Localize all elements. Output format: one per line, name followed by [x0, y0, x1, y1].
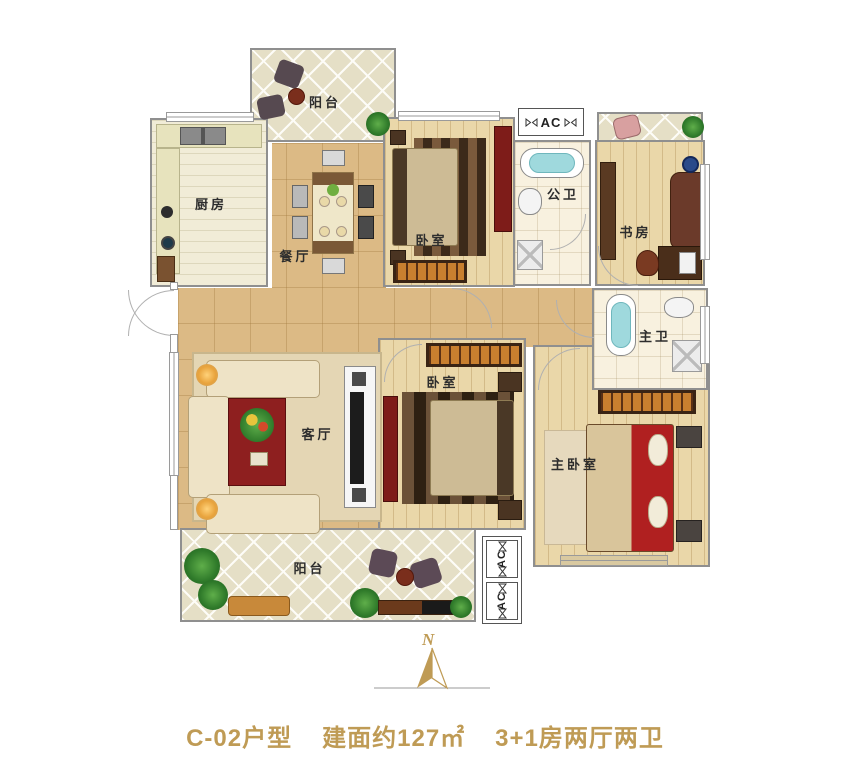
master-bed-pillow: [648, 434, 668, 466]
ac-label-bottom-2: AC: [496, 592, 508, 610]
bowtie-icon: [564, 118, 577, 127]
master-bath-bathtub: [606, 294, 636, 356]
bedroom-mid-nightstand: [498, 500, 522, 520]
room-label-bedroom-mid: 卧室: [415, 372, 470, 391]
balcony-bottom-chair: [368, 548, 399, 579]
room-label-bedroom-top: 卧室: [404, 230, 459, 249]
public-bath-shower: [517, 240, 543, 270]
living-tv: [350, 392, 364, 484]
balcony-bottom-planter: [378, 600, 458, 615]
study-bay-plant: [682, 116, 704, 138]
living-sofa-top: [206, 360, 320, 398]
floorplan-canvas: 阳台 厨房 餐厅 卧室 AC 公卫 书房: [0, 0, 850, 767]
master-bedroom-window: [560, 555, 668, 566]
dining-chair: [322, 150, 345, 166]
study-sofa: [670, 172, 702, 250]
dining-plate: [336, 226, 347, 237]
kitchen-stove-burner: [161, 236, 175, 250]
room-label-master-bedroom: 主卧室: [540, 454, 610, 473]
room-label-master-bath: 主卫: [632, 326, 678, 345]
dining-chair: [292, 185, 308, 208]
caption-area: 建面约127㎡: [322, 718, 465, 753]
study-clock: [682, 156, 699, 173]
living-sofa-bottom: [206, 494, 320, 534]
bedroom-top-window: [398, 111, 500, 121]
caption-unit: C-02户型: [186, 718, 292, 753]
public-bath-bathtub: [520, 148, 584, 178]
kitchen-sink: [180, 127, 226, 145]
room-label-dining: 餐厅: [268, 246, 323, 265]
ac-label-top: AC: [541, 115, 562, 130]
dining-plate: [319, 196, 330, 207]
ac-unit-bottom-1: AC: [486, 540, 518, 578]
room-label-kitchen: 厨房: [181, 194, 241, 213]
bedroom-mid-nightstand: [498, 372, 522, 392]
study-chair: [636, 250, 659, 276]
living-table-flowers: [240, 408, 274, 442]
living-speaker: [352, 488, 366, 502]
master-bath-window-right: [700, 306, 710, 364]
dining-chair: [358, 216, 374, 239]
bowtie-icon: [525, 118, 538, 127]
master-nightstand: [676, 426, 702, 448]
balcony-bottom-table: [396, 568, 414, 586]
living-sofa-left: [188, 396, 230, 498]
room-label-study: 书房: [608, 222, 663, 241]
compass-icon: [372, 644, 492, 694]
living-lamp: [196, 364, 218, 386]
ac-unit-bottom-2: AC: [486, 582, 518, 620]
kitchen-window-top: [166, 112, 254, 122]
room-label-balcony-top: 阳台: [295, 92, 355, 111]
master-bath-toilet: [664, 297, 694, 318]
room-label-balcony-bottom: 阳台: [282, 558, 337, 577]
study-window-right: [700, 164, 710, 260]
caption-layout: 3+1房两厅两卫: [495, 718, 664, 753]
dining-plate: [319, 226, 330, 237]
kitchen-stove-burner: [161, 206, 173, 218]
living-window-left: [169, 352, 179, 476]
balcony-bottom-plant: [450, 596, 472, 618]
bedroom-top-wardrobe-red: [494, 126, 512, 232]
master-bedroom-closet: [598, 390, 696, 414]
balcony-plant: [366, 112, 390, 136]
bedroom-mid-wardrobe: [426, 343, 522, 367]
caption-bar: C-02户型 建面约127㎡ 3+1房两厅两卫: [0, 718, 850, 753]
room-label-living: 客厅: [290, 424, 345, 443]
living-speaker: [352, 372, 366, 386]
balcony-bottom-plant: [350, 588, 380, 618]
balcony-bottom-palm: [184, 548, 220, 584]
dining-chair: [358, 185, 374, 208]
left-wall-upper: [170, 282, 178, 290]
master-nightstand: [676, 520, 702, 542]
dining-plate: [336, 196, 347, 207]
study-printer: [679, 252, 696, 274]
ac-unit-top: AC: [518, 108, 584, 136]
bedroom-mid-tv-cabinet: [383, 396, 398, 502]
living-table-tray: [250, 452, 268, 466]
balcony-bottom-palm: [198, 580, 228, 610]
ac-label-bottom-1: AC: [496, 550, 508, 568]
dining-chair: [322, 258, 345, 274]
master-bed-pillow: [648, 496, 668, 528]
dining-centerpiece: [327, 184, 339, 196]
living-lamp: [196, 498, 218, 520]
kitchen-cabinet: [157, 256, 175, 282]
room-label-public-bath: 公卫: [538, 184, 588, 203]
bedroom-top-nightstand: [390, 130, 406, 145]
bedroom-mid-bed: [430, 400, 514, 496]
balcony-bottom-bench: [228, 596, 290, 616]
bedroom-top-dresser: [393, 260, 467, 283]
dining-chair: [292, 216, 308, 239]
